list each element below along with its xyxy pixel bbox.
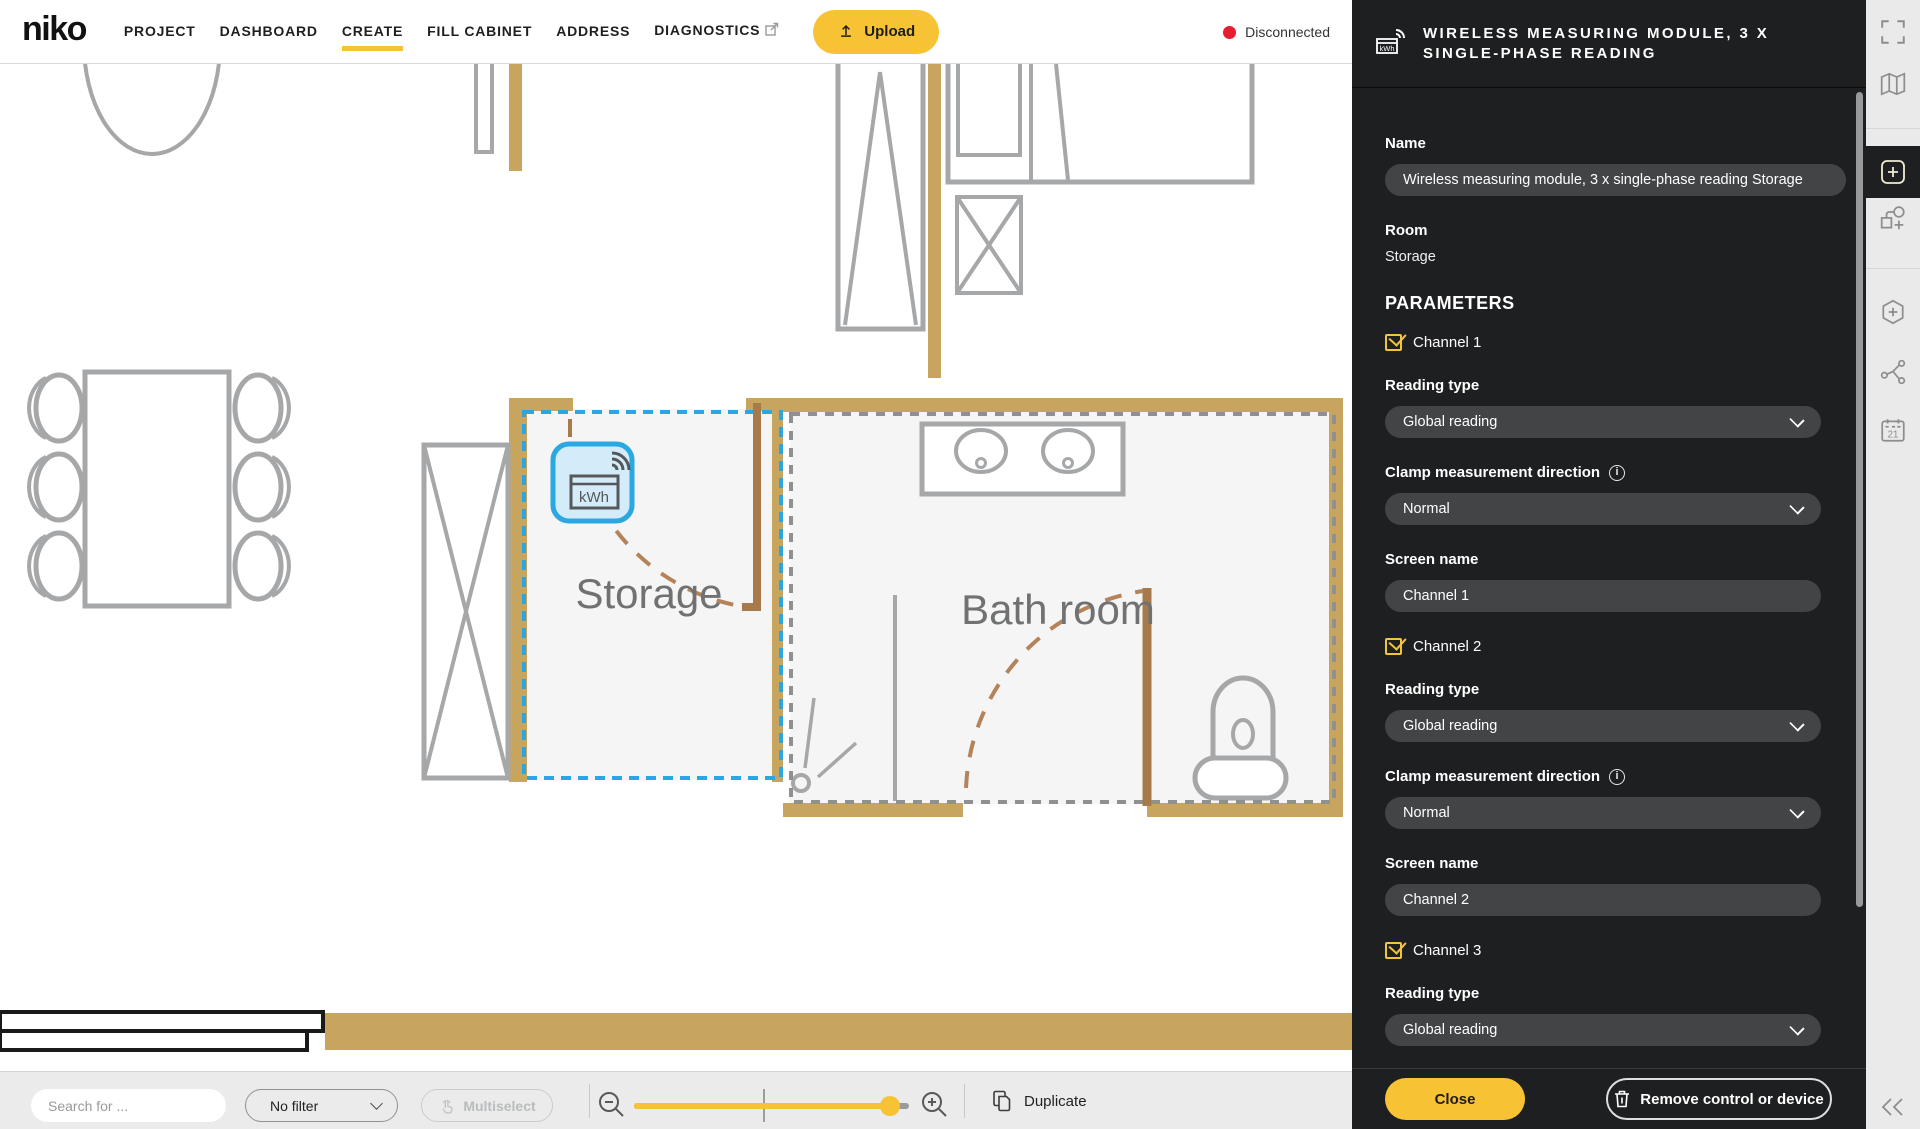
- panel-footer: Close Remove control or device: [1352, 1068, 1866, 1129]
- connection-status: Disconnected: [1223, 0, 1330, 64]
- tap-hand-icon: [438, 1097, 455, 1114]
- storage-room-label: Storage: [575, 570, 722, 617]
- wardrobe-crossed: [424, 445, 508, 778]
- remove-device-label: Remove control or device: [1640, 1091, 1823, 1108]
- bathroom-label: Bath room: [961, 586, 1155, 633]
- crossed-box: [957, 197, 1021, 293]
- svg-text:21: 21: [1888, 430, 1899, 441]
- device-config-panel: kWh WIRELESS MEASURING MODULE, 3 X SINGL…: [1352, 0, 1866, 1129]
- chevron-down-icon: [1789, 803, 1804, 818]
- tall-wardrobe: [838, 64, 923, 329]
- checkbox-checked-icon[interactable]: [1385, 638, 1402, 655]
- nav-item-project[interactable]: PROJECT: [124, 15, 196, 49]
- channel-2-reading-type-select[interactable]: Global reading: [1385, 710, 1821, 742]
- chevron-down-icon: [1789, 412, 1804, 427]
- clamp-direction-label-row: Clamp measurement direction: [1385, 464, 1836, 481]
- nav-item-fill-cabinet[interactable]: FILL CABINET: [427, 15, 532, 49]
- svg-text:kWh: kWh: [1380, 44, 1395, 53]
- divider: [964, 1084, 965, 1118]
- filter-value: No filter: [270, 1098, 318, 1114]
- add-device-tool-active[interactable]: [1866, 146, 1920, 198]
- nav-item-dashboard[interactable]: DASHBOARD: [220, 15, 318, 49]
- fullscreen-icon[interactable]: [1879, 18, 1907, 46]
- chevron-down-icon: [1789, 499, 1804, 514]
- clamp-direction-label: Clamp measurement direction: [1385, 464, 1600, 481]
- screen-name-label: Screen name: [1385, 855, 1836, 872]
- bottom-toolbar: No filter Multiselect Duplicate: [0, 1071, 1352, 1129]
- channel-3-reading-type-select[interactable]: Global reading: [1385, 1014, 1821, 1046]
- nav-menu: PROJECT DASHBOARD CREATE FILL CABINET AD…: [124, 14, 779, 49]
- device-name-input[interactable]: [1385, 164, 1846, 196]
- right-toolbar: 21: [1866, 0, 1920, 1129]
- floorplan-canvas[interactable]: kWh Storage Bath room: [0, 64, 1352, 1071]
- channel-3-checkbox-row[interactable]: Channel 3: [1385, 942, 1836, 959]
- chevron-down-icon: [370, 1097, 383, 1110]
- channel-2-screen-name-input[interactable]: [1385, 884, 1821, 916]
- reading-type-label: Reading type: [1385, 681, 1836, 698]
- multiselect-label: Multiselect: [463, 1098, 535, 1114]
- top-navigation: niko PROJECT DASHBOARD CREATE FILL CABIN…: [0, 0, 1352, 64]
- name-label: Name: [1385, 135, 1836, 152]
- info-icon[interactable]: [1609, 465, 1625, 481]
- map-icon[interactable]: [1879, 70, 1907, 98]
- nav-item-create[interactable]: CREATE: [342, 15, 403, 49]
- channel-3-label: Channel 3: [1413, 942, 1481, 959]
- panel-title: WIRELESS MEASURING MODULE, 3 X SINGLE-PH…: [1423, 24, 1833, 63]
- checkbox-checked-icon[interactable]: [1385, 942, 1402, 959]
- reading-type-value: Global reading: [1403, 1022, 1497, 1038]
- divider: [1866, 268, 1920, 269]
- parameters-heading: PARAMETERS: [1385, 293, 1836, 314]
- clamp-direction-value: Normal: [1403, 501, 1450, 517]
- measuring-module-device-icon[interactable]: kWh: [553, 444, 632, 521]
- close-button[interactable]: Close: [1385, 1078, 1525, 1120]
- zoom-out-icon[interactable]: [597, 1090, 627, 1120]
- channel-1-reading-type-select[interactable]: Global reading: [1385, 406, 1821, 438]
- nav-item-diagnostics-label: DIAGNOSTICS: [654, 22, 760, 38]
- upload-icon: [837, 23, 855, 41]
- stairs: [0, 1012, 323, 1050]
- screen-name-label: Screen name: [1385, 551, 1836, 568]
- channel-1-checkbox-row[interactable]: Channel 1: [1385, 334, 1836, 351]
- connections-icon[interactable]: [1879, 358, 1907, 386]
- nav-item-diagnostics[interactable]: DIAGNOSTICS: [654, 14, 779, 49]
- duplicate-icon: [992, 1090, 1012, 1112]
- collapse-panel-icon[interactable]: [1880, 1097, 1906, 1117]
- hexagon-add-icon[interactable]: [1879, 298, 1907, 326]
- add-control-icon[interactable]: [1879, 205, 1907, 233]
- panel-scrollbar[interactable]: [1856, 92, 1863, 907]
- reading-type-label: Reading type: [1385, 377, 1836, 394]
- channel-1-screen-name-input[interactable]: [1385, 580, 1821, 612]
- info-icon[interactable]: [1609, 769, 1625, 785]
- upload-button-label: Upload: [864, 23, 915, 40]
- reading-type-value: Global reading: [1403, 718, 1497, 734]
- divider: [589, 1084, 590, 1118]
- duplicate-label: Duplicate: [1024, 1093, 1087, 1110]
- status-text: Disconnected: [1245, 24, 1330, 40]
- multiselect-button[interactable]: Multiselect: [421, 1089, 553, 1122]
- room-value: Storage: [1385, 249, 1836, 265]
- wireless-meter-icon: kWh: [1374, 29, 1408, 59]
- channel-2-label: Channel 2: [1413, 638, 1481, 655]
- add-device-icon: [1880, 159, 1906, 185]
- device-kwh-label: kWh: [579, 489, 609, 506]
- zoom-in-icon[interactable]: [920, 1090, 950, 1120]
- channel-1-clamp-direction-select[interactable]: Normal: [1385, 493, 1821, 525]
- chevron-down-icon: [1789, 716, 1804, 731]
- calendar-icon[interactable]: 21: [1879, 416, 1907, 444]
- sink-counter: [922, 424, 1123, 494]
- channel-1-label: Channel 1: [1413, 334, 1481, 351]
- dining-table: [85, 372, 229, 606]
- zoom-slider-thumb[interactable]: [880, 1096, 900, 1116]
- panel-content: Name Room Storage PARAMETERS Channel 1 R…: [1352, 89, 1856, 1068]
- reading-type-label: Reading type: [1385, 985, 1836, 1002]
- channel-2-checkbox-row[interactable]: Channel 2: [1385, 638, 1836, 655]
- panel-header: kWh WIRELESS MEASURING MODULE, 3 X SINGL…: [1352, 0, 1866, 88]
- clamp-direction-value: Normal: [1403, 805, 1450, 821]
- channel-2-clamp-direction-select[interactable]: Normal: [1385, 797, 1821, 829]
- remove-device-button[interactable]: Remove control or device: [1606, 1078, 1832, 1120]
- nav-item-address[interactable]: ADDRESS: [556, 15, 630, 49]
- filter-dropdown[interactable]: No filter: [245, 1089, 398, 1122]
- window-rect: [476, 64, 492, 152]
- niko-logo: niko: [22, 10, 86, 49]
- duplicate-button[interactable]: Duplicate: [992, 1084, 1087, 1118]
- arc-fixture: [84, 64, 220, 154]
- cabinet-group: [948, 64, 1252, 182]
- trash-icon: [1614, 1090, 1630, 1108]
- floorplan-svg: kWh Storage Bath room: [0, 64, 1352, 1071]
- chevron-down-icon: [1789, 1020, 1804, 1035]
- search-input[interactable]: [31, 1089, 226, 1122]
- upload-button[interactable]: Upload: [813, 10, 939, 54]
- external-link-icon: [765, 22, 779, 39]
- divider: [1866, 128, 1920, 129]
- zoom-slider-fill: [634, 1103, 890, 1109]
- room-label: Room: [1385, 222, 1836, 239]
- status-dot-icon: [1223, 26, 1236, 39]
- reading-type-value: Global reading: [1403, 414, 1497, 430]
- clamp-direction-label: Clamp measurement direction: [1385, 768, 1600, 785]
- checkbox-checked-icon[interactable]: [1385, 334, 1402, 351]
- clamp-direction-label-row: Clamp measurement direction: [1385, 768, 1836, 785]
